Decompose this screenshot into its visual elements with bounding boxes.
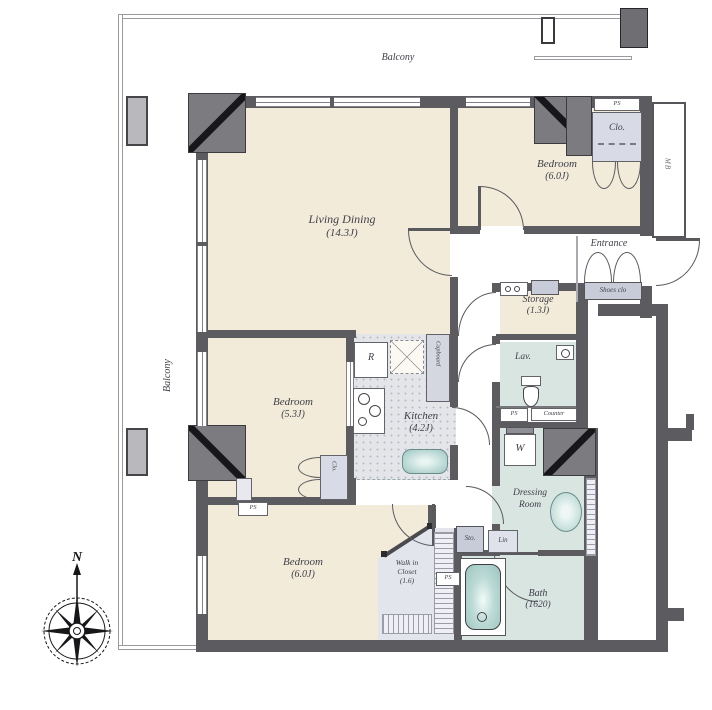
- storage-size: (1.3J): [500, 306, 576, 318]
- intercom-knob: [505, 286, 511, 292]
- bedroom-middle-name: Bedroom: [236, 396, 350, 409]
- wic-diagonal-post-a: [381, 551, 387, 557]
- floor-plan: Balcony Balcony: [0, 0, 712, 710]
- bath-label: Bath (1620): [506, 588, 570, 612]
- balcony-end-block: [620, 8, 648, 48]
- intercom-knob: [514, 286, 520, 292]
- wall-block-right-upper: [576, 283, 588, 428]
- window-ld-left-2: [197, 246, 207, 332]
- kitchen-size: (4.2J): [386, 423, 456, 435]
- refrigerator-box: R: [354, 342, 388, 378]
- walk-in-closet-label: Walk in Closet (1.6): [380, 558, 434, 585]
- living-dining-name: Living Dining: [282, 212, 402, 227]
- closet-hanger-dashes: [598, 143, 636, 145]
- balcony-outline-top: [118, 14, 648, 19]
- refrigerator-label: R: [355, 352, 387, 364]
- living-dining-label: Living Dining (14.3J): [282, 212, 402, 240]
- ps-box-lav: PS: [500, 408, 528, 422]
- stove-burner: [358, 417, 367, 426]
- bedroom-top-size: (6.0J): [500, 171, 614, 183]
- compass-icon: N: [30, 545, 125, 670]
- shoes-closet-bifold-right: [613, 252, 641, 282]
- door-kitchen-hall: [452, 407, 490, 445]
- wall-ld-bedroom53: [196, 330, 356, 338]
- balcony-top-label: Balcony: [338, 52, 458, 64]
- door-living-dining-leaf: [408, 228, 454, 231]
- storage-top-panel: [531, 280, 559, 295]
- linen-label: Lin: [489, 536, 517, 545]
- window-bedroom6-left: [197, 556, 207, 614]
- bath-size: (1620): [506, 600, 570, 612]
- wall-step-entrance: [598, 304, 668, 316]
- compass-north-text: N: [71, 550, 83, 565]
- closet-top-label: Clo.: [593, 123, 641, 135]
- balcony-outline-bottom: [118, 645, 198, 650]
- lav-sink-bowl: [561, 349, 570, 358]
- wall-hall-left: [450, 277, 458, 334]
- counter-box: Counter: [531, 408, 577, 421]
- bedroom-bottom-name: Bedroom: [246, 556, 360, 569]
- wall-tick-right-low: [666, 608, 684, 621]
- storage-name: Storage: [500, 294, 576, 306]
- ps-label: PS: [595, 100, 639, 108]
- stove-burner: [369, 405, 381, 417]
- balcony-left-label: Balcony: [162, 344, 178, 408]
- wall-kitchen-right-b: [450, 445, 458, 480]
- wall-block-left-a: [492, 283, 500, 292]
- shoes-closet-bifold-left: [584, 252, 612, 282]
- balcony-partition-panel: [126, 428, 148, 476]
- ps-box-top-right: PS: [594, 98, 640, 111]
- pillar-top-mid-ext: [566, 96, 592, 156]
- counter-label: Counter: [532, 410, 576, 418]
- small-storage-label: Sto.: [457, 534, 483, 543]
- window-bedroomtop: [466, 97, 530, 107]
- living-dining-size: (14.3J): [282, 227, 402, 240]
- pillar-stripe: [188, 425, 246, 481]
- cupboard-strip: Cupboard: [426, 334, 450, 402]
- wall-bedroomtop-bottom-a: [450, 226, 480, 234]
- kitchen-sink: [402, 449, 448, 474]
- window-bedroom53-left: [197, 352, 207, 426]
- meter-box: MB: [652, 102, 686, 238]
- balcony-partition-panel: [126, 96, 148, 146]
- genkan-step-line: [576, 236, 578, 302]
- ps-label: PS: [501, 410, 527, 418]
- wall-bedroom53-right-a: [346, 334, 354, 362]
- lav-sink: [556, 345, 574, 360]
- window-ld-top-2: [334, 97, 420, 107]
- pillar-mid-right: [543, 428, 596, 476]
- wall-bath-top-b: [538, 550, 586, 556]
- wall-ld-bedroomtop: [450, 108, 458, 232]
- wall-right-lower: [656, 316, 668, 652]
- pillar-stripe: [543, 428, 596, 476]
- storage-label: Storage (1.3J): [500, 294, 576, 318]
- door-entrance: [656, 240, 700, 286]
- balcony-notch: [541, 17, 555, 44]
- wall-block-left-c: [492, 382, 500, 486]
- entrance-label: Entrance: [578, 238, 640, 250]
- bathtub-drain: [477, 612, 487, 622]
- balcony-outline-step: [534, 56, 632, 60]
- kitchen-name: Kitchen: [386, 410, 456, 423]
- stove-unit: [353, 388, 385, 434]
- pillar-mid-left: [188, 425, 246, 481]
- bath-name: Bath: [506, 588, 570, 600]
- window-ld-left-1: [197, 160, 207, 242]
- ps-label: PS: [239, 504, 267, 512]
- wall-hatch-dressing-right: [586, 478, 596, 556]
- wic-size: (1.6): [380, 576, 434, 585]
- ps-box-wic: PS: [436, 572, 460, 586]
- ps-box-junction: PS: [238, 502, 268, 516]
- door-entrance-leaf: [656, 238, 700, 241]
- wall-kitchen-bottom-stub: [348, 478, 356, 505]
- wic-line1: Walk in: [380, 558, 434, 567]
- stove-burner: [358, 393, 370, 405]
- wall-bedroomtop-bottom-b: [524, 226, 652, 234]
- wall-stub-right-mid: [686, 414, 694, 430]
- wall-kitchen-right-a: [450, 334, 458, 407]
- kitchen-label: Kitchen (4.2J): [386, 410, 456, 436]
- dressing-basin: [550, 492, 582, 532]
- bedroom-top-label: Bedroom (6.0J): [500, 158, 614, 184]
- bedroom-bottom-label: Bedroom (6.0J): [246, 556, 360, 582]
- closet-top-right: Clo.: [592, 112, 642, 162]
- door-bedroom-top-leaf: [478, 186, 481, 230]
- toilet-tank: [521, 376, 541, 386]
- shaft-box-junction: [236, 478, 252, 501]
- wall-storage-lav-divider: [496, 334, 580, 340]
- door-storage: [458, 292, 496, 336]
- dressing-line1: Dressing: [498, 488, 562, 500]
- pillar-stripe: [188, 93, 246, 153]
- closet-53-label: Clo.: [330, 461, 338, 472]
- small-storage-box: Sto.: [456, 526, 484, 553]
- kitchen-hatch-box: [390, 340, 424, 374]
- washer-pan-strip: [506, 427, 534, 434]
- washer-label: W: [505, 442, 535, 455]
- cupboard-label: Cupboard: [434, 341, 442, 366]
- lavatory-label: Lav.: [500, 352, 546, 364]
- bedroom-middle-size: (5.3J): [236, 409, 350, 421]
- wic-hanger-strip-bottom: [382, 614, 432, 634]
- pillar-top-left: [188, 93, 246, 153]
- wic-line2: Closet: [380, 567, 434, 576]
- bedroom-middle-label: Bedroom (5.3J): [236, 396, 350, 422]
- linen-box: Lin: [488, 530, 518, 553]
- shoes-closet-box: Shoes clo: [584, 282, 642, 300]
- washer-box: W: [504, 434, 536, 466]
- ps-label: PS: [437, 574, 459, 582]
- bedroom-top-name: Bedroom: [500, 158, 614, 171]
- window-ld-top-1: [256, 97, 330, 107]
- closet-53-strip: Clo.: [320, 455, 348, 500]
- door-lavatory: [458, 344, 496, 382]
- shoes-closet-label: Shoes clo: [585, 286, 641, 295]
- meter-box-label: MB: [663, 158, 672, 170]
- bedroom-bottom-size: (6.0J): [246, 569, 360, 581]
